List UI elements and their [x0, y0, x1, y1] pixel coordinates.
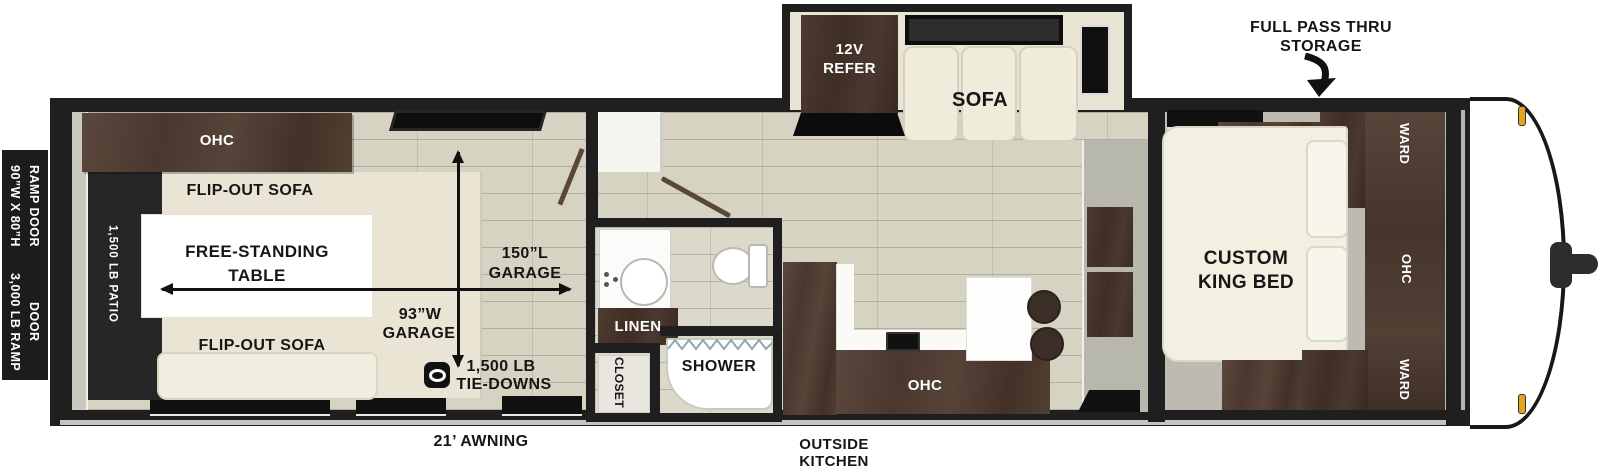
toilet-tank: [748, 244, 768, 288]
media-cabinet-door: [1087, 272, 1133, 337]
flip-out-sofa-top-label: FLIP-OUT SOFA: [150, 183, 350, 199]
garage-ohc-label: OHC: [82, 133, 352, 148]
tie-downs-line2: TIE-DOWNS: [450, 377, 558, 393]
bed-step: [1302, 350, 1368, 410]
flip-sofa-cushion: [157, 352, 378, 400]
patio-label: 1,500 LB PATIO: [106, 212, 128, 336]
ward-bottom-label: WARD: [1398, 350, 1420, 410]
tie-downs-line1: 1,500 LB: [450, 359, 552, 375]
ramp-size-line2: RAMP DOOR: [24, 154, 43, 258]
dinette-table: [966, 277, 1032, 361]
front-wall-liner: [1461, 110, 1465, 410]
bed-label-line1: CUSTOM: [1156, 249, 1336, 268]
media-cabinet-door: [1087, 207, 1133, 267]
pillow: [1306, 140, 1348, 238]
marker-light: [1518, 394, 1526, 414]
floorplan-diagram: 1,500 LB PATIO OHC FLIP-OUT SOFA FREE-ST…: [0, 0, 1600, 466]
marker-light: [1518, 106, 1526, 126]
bath-sink: [620, 258, 668, 306]
shower-label: SHOWER: [660, 359, 778, 375]
ramp-capacity-label: 3,000 LB RAMP DOOR: [5, 268, 47, 376]
kitchen-counter-left: [783, 262, 837, 415]
garage-width-line1: 93”W: [365, 307, 475, 323]
shower-curtain-icon: [668, 337, 772, 351]
faucet-icon: [604, 272, 609, 277]
ramp-spec-bar: 90”W X 80”H RAMP DOOR 3,000 LB RAMP DOOR: [2, 150, 48, 380]
slide-tv: [905, 15, 1063, 45]
garage-length-line2: GARAGE: [470, 266, 580, 282]
kitchen-ohc-label: OHC: [885, 378, 965, 393]
outside-kitchen-line1: OUTSIDE: [794, 437, 874, 452]
garage-length-arrow: [162, 288, 570, 291]
ramp-capacity-line2: DOOR: [24, 268, 43, 376]
closet-label: CLOSET: [613, 356, 633, 410]
refer-label-line1: 12V: [801, 42, 898, 57]
table-label-line2: TABLE: [142, 267, 372, 284]
garage-window: [502, 396, 582, 416]
ramp-size-label: 90”W X 80”H RAMP DOOR: [5, 154, 47, 258]
bedroom-ohc-label: OHC: [1400, 246, 1422, 292]
closet-divider-wall: [650, 343, 660, 422]
pass-thru-storage-line1: FULL PASS THRU: [1236, 20, 1406, 36]
hitch-bar-icon: [1560, 254, 1598, 274]
table-label-line1: FREE-STANDING: [142, 243, 372, 260]
garage-roof-vent: [389, 110, 547, 131]
ramp-size-line1: 90”W X 80”H: [5, 154, 24, 258]
storage-arrow-icon: [1298, 53, 1340, 97]
stool: [1027, 290, 1061, 324]
outside-kitchen-line2: KITCHEN: [794, 454, 874, 466]
slide-window: [1080, 25, 1110, 95]
stove-icon: [886, 332, 920, 351]
refrigerator-base: [793, 113, 905, 136]
stool: [1030, 327, 1064, 361]
bath-divider-wall: [586, 343, 660, 353]
refer-label-line2: REFER: [801, 61, 898, 76]
ramp-capacity-line1: 3,000 LB RAMP: [5, 268, 24, 376]
garage-width-line2: GARAGE: [364, 326, 474, 342]
shower-wall: [660, 326, 782, 336]
bed-label-line2: KING BED: [1156, 273, 1336, 292]
ward-top-label: WARD: [1398, 116, 1420, 172]
awning-label: 21’ AWNING: [398, 434, 564, 450]
tie-down-ring-icon: [429, 369, 446, 382]
sofa-label: SOFA: [930, 90, 1030, 110]
garage-length-line1: 150”L: [470, 246, 580, 262]
bed-bench: [1222, 360, 1302, 410]
tie-down-icon: [424, 362, 450, 388]
entry-landing: [598, 112, 663, 172]
